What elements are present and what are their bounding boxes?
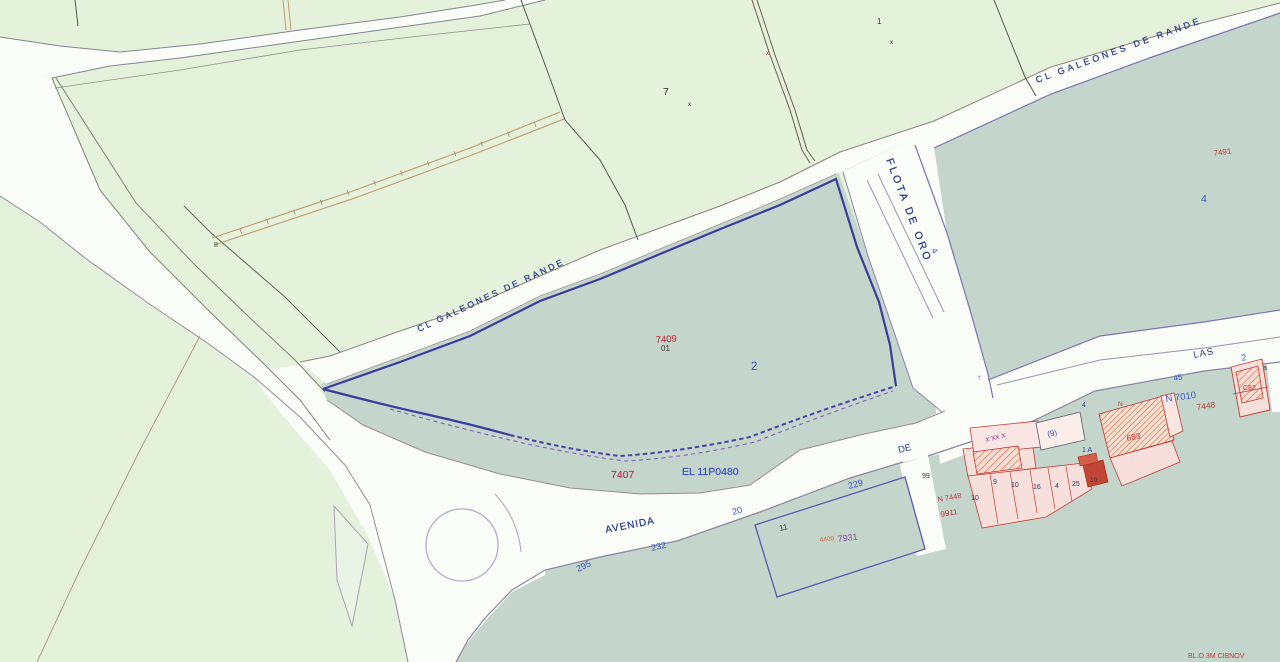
svg-text:EL 11P0480: EL 11P0480 [682, 466, 739, 478]
svg-text:10: 10 [1011, 482, 1019, 489]
svg-text:99: 99 [922, 473, 930, 480]
svg-text:25: 25 [1072, 481, 1080, 488]
svg-text:↑: ↑ [977, 373, 981, 382]
svg-text:4: 4 [1201, 193, 1207, 205]
svg-text:C82: C82 [1243, 385, 1256, 392]
svg-text:x: x [766, 51, 769, 57]
svg-text:10: 10 [1090, 477, 1098, 484]
svg-text:N: N [1118, 401, 1123, 408]
svg-text:1: 1 [877, 17, 882, 26]
svg-text:2: 2 [751, 361, 757, 373]
svg-text:10: 10 [971, 495, 979, 502]
svg-text:7407: 7407 [611, 469, 635, 481]
svg-text:16: 16 [1033, 484, 1041, 491]
svg-text:01: 01 [661, 344, 670, 353]
svg-text:BL.O 3M CIBNOV: BL.O 3M CIBNOV [1188, 653, 1245, 660]
svg-text:x: x [890, 40, 893, 46]
svg-text:7: 7 [663, 86, 669, 98]
svg-text:II: II [214, 242, 218, 249]
svg-text:1 A: 1 A [1082, 447, 1092, 454]
svg-text:4: 4 [1055, 483, 1059, 490]
svg-text:x: x [688, 102, 691, 108]
svg-text:9: 9 [993, 479, 997, 486]
svg-text:4: 4 [1082, 402, 1086, 409]
